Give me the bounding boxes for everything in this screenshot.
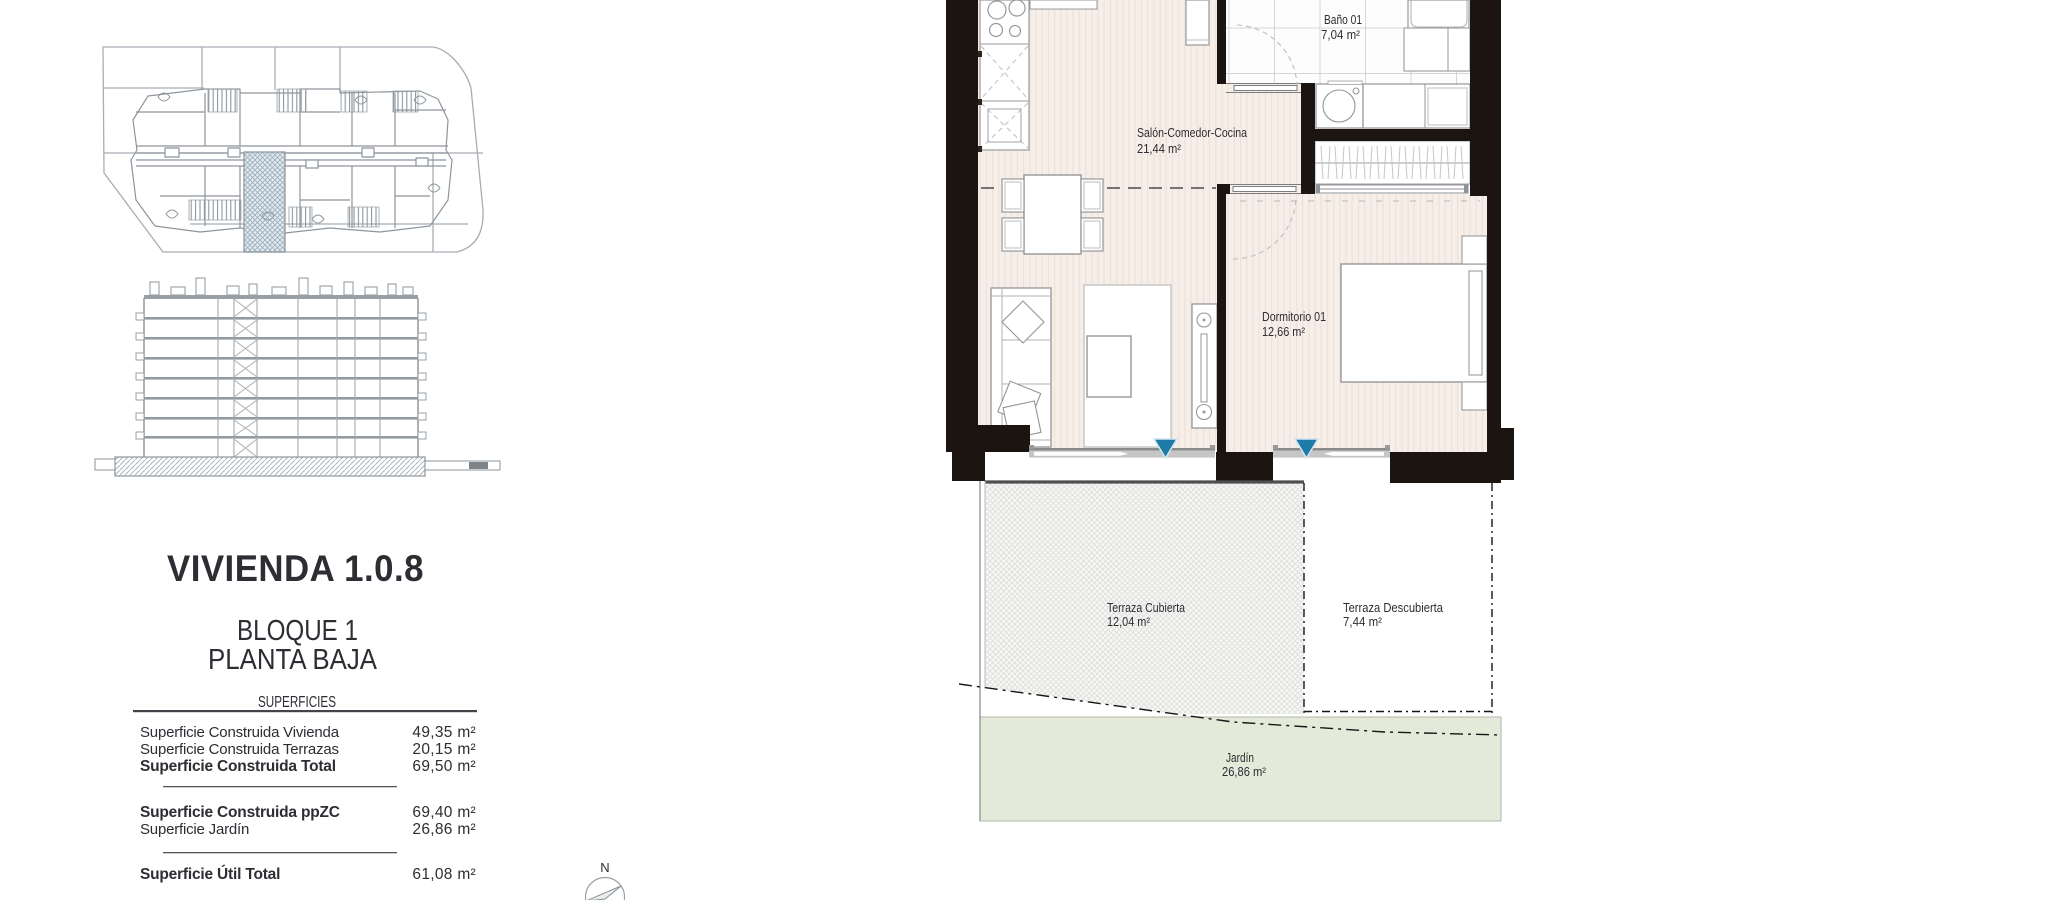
svg-text:61,08 m²: 61,08 m² (412, 866, 476, 883)
svg-text:Superficie Construida ppZC: Superficie Construida ppZC (140, 804, 340, 821)
svg-text:21,44 m²: 21,44 m² (1137, 141, 1182, 156)
svg-text:N: N (600, 860, 609, 875)
svg-text:Superficie Útil Total: Superficie Útil Total (140, 865, 280, 883)
svg-text:Superficie Construida Terrazas: Superficie Construida Terrazas (140, 741, 339, 758)
svg-text:12,66 m²: 12,66 m² (1262, 324, 1306, 339)
svg-text:49,35 m²: 49,35 m² (412, 724, 476, 741)
svg-text:Salón-Comedor-Cocina: Salón-Comedor-Cocina (1137, 125, 1248, 140)
svg-text:PLANTA BAJA: PLANTA BAJA (208, 644, 378, 676)
svg-text:Baño 01: Baño 01 (1324, 12, 1362, 27)
svg-text:Terraza Cubierta: Terraza Cubierta (1107, 601, 1185, 615)
svg-text:SUPERFICIES: SUPERFICIES (258, 694, 336, 711)
svg-text:69,40 m²: 69,40 m² (412, 804, 476, 821)
svg-text:69,50 m²: 69,50 m² (412, 758, 476, 775)
svg-text:12,04 m²: 12,04 m² (1107, 615, 1150, 629)
svg-text:BLOQUE 1: BLOQUE 1 (237, 615, 358, 647)
svg-text:7,44 m²: 7,44 m² (1343, 615, 1382, 629)
svg-text:7,04 m²: 7,04 m² (1321, 27, 1361, 42)
svg-text:VIVIENDA 1.0.8: VIVIENDA 1.0.8 (167, 548, 424, 589)
svg-text:Dormitorio 01: Dormitorio 01 (1262, 309, 1326, 324)
svg-text:26,86 m²: 26,86 m² (412, 821, 476, 838)
svg-text:Terraza Descubierta: Terraza Descubierta (1343, 601, 1443, 615)
svg-text:Jardín: Jardín (1226, 751, 1254, 765)
svg-text:20,15 m²: 20,15 m² (412, 741, 476, 758)
svg-text:Superficie Construida Vivienda: Superficie Construida Vivienda (140, 724, 340, 741)
svg-text:Superficie Jardín: Superficie Jardín (140, 821, 249, 838)
svg-text:Superficie Construida Total: Superficie Construida Total (140, 758, 336, 775)
svg-text:26,86 m²: 26,86 m² (1222, 765, 1266, 779)
